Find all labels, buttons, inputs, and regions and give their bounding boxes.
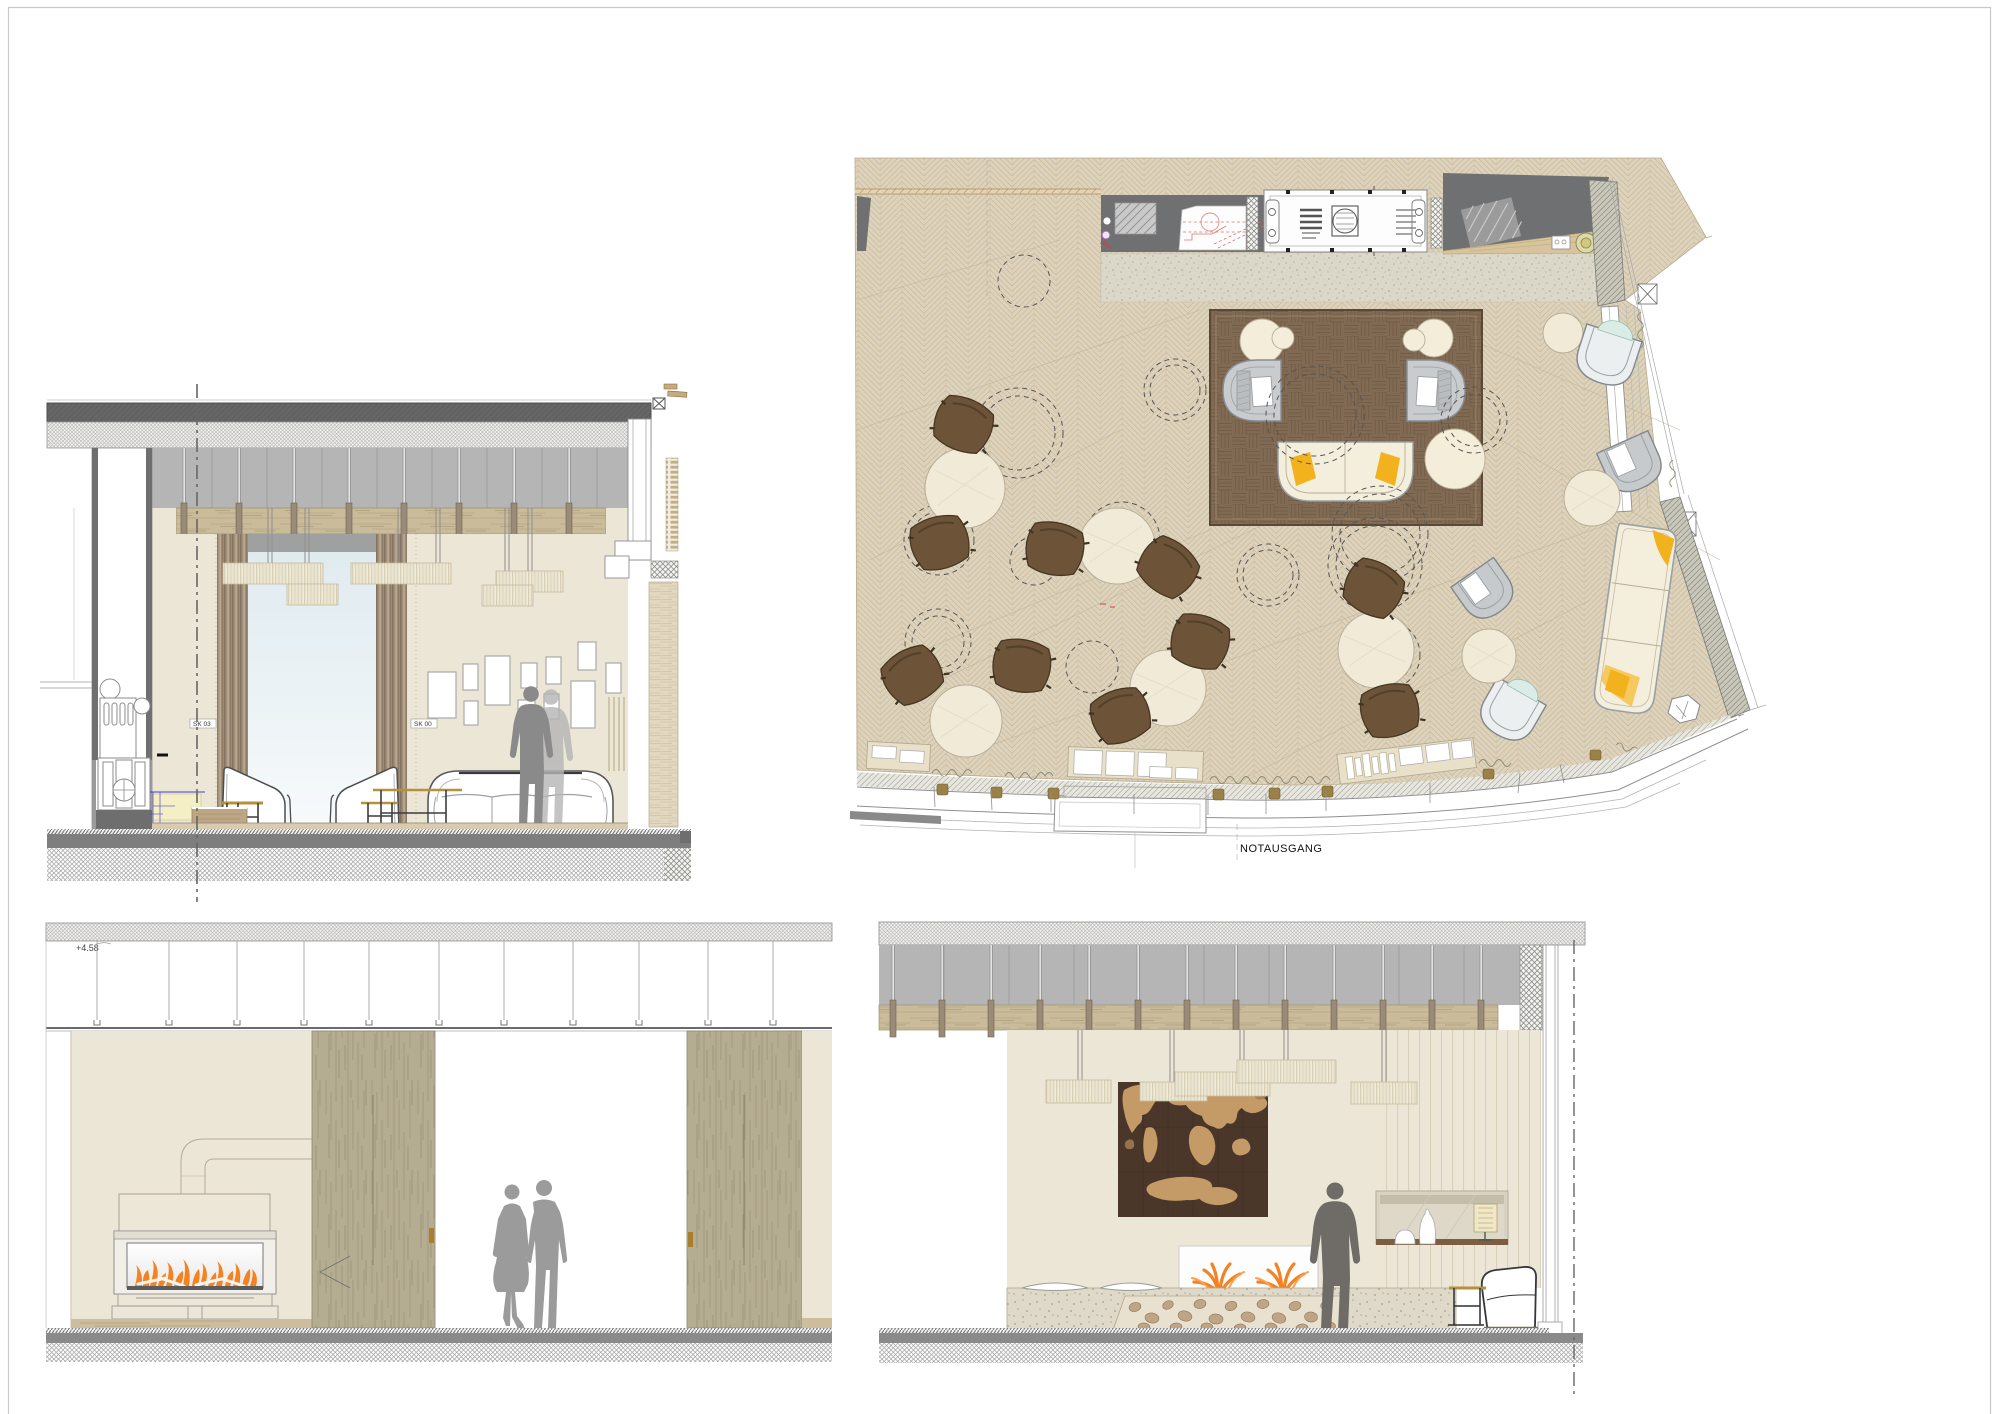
svg-text:SK 00: SK 00 bbox=[414, 721, 432, 728]
svg-text:SK 03: SK 03 bbox=[193, 721, 211, 728]
svg-text:NOTAUSGANG: NOTAUSGANG bbox=[1240, 843, 1322, 855]
